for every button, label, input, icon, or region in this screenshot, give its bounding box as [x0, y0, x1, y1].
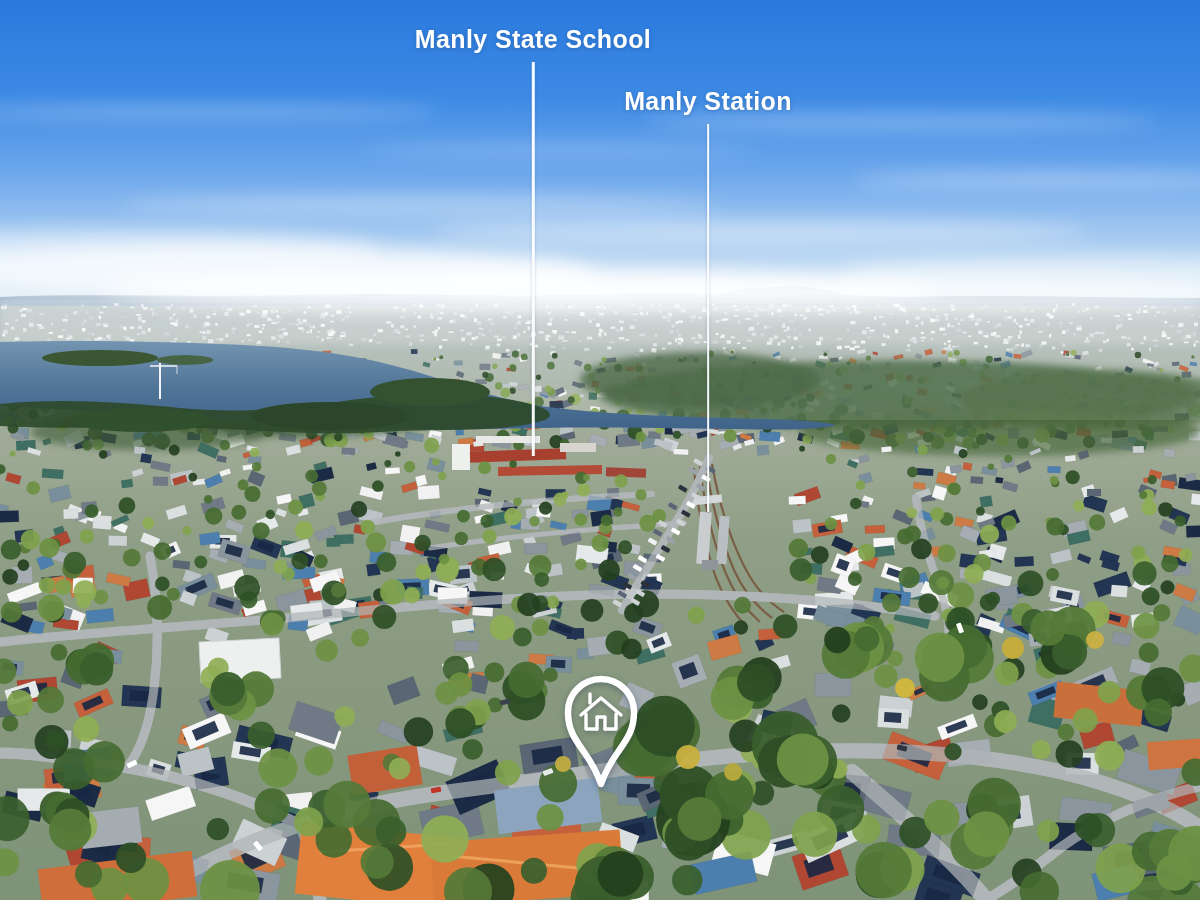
- house-icon: [581, 694, 621, 729]
- aerial-photo: Manly State School Manly Station: [0, 0, 1200, 900]
- property-location-pin: [556, 654, 646, 789]
